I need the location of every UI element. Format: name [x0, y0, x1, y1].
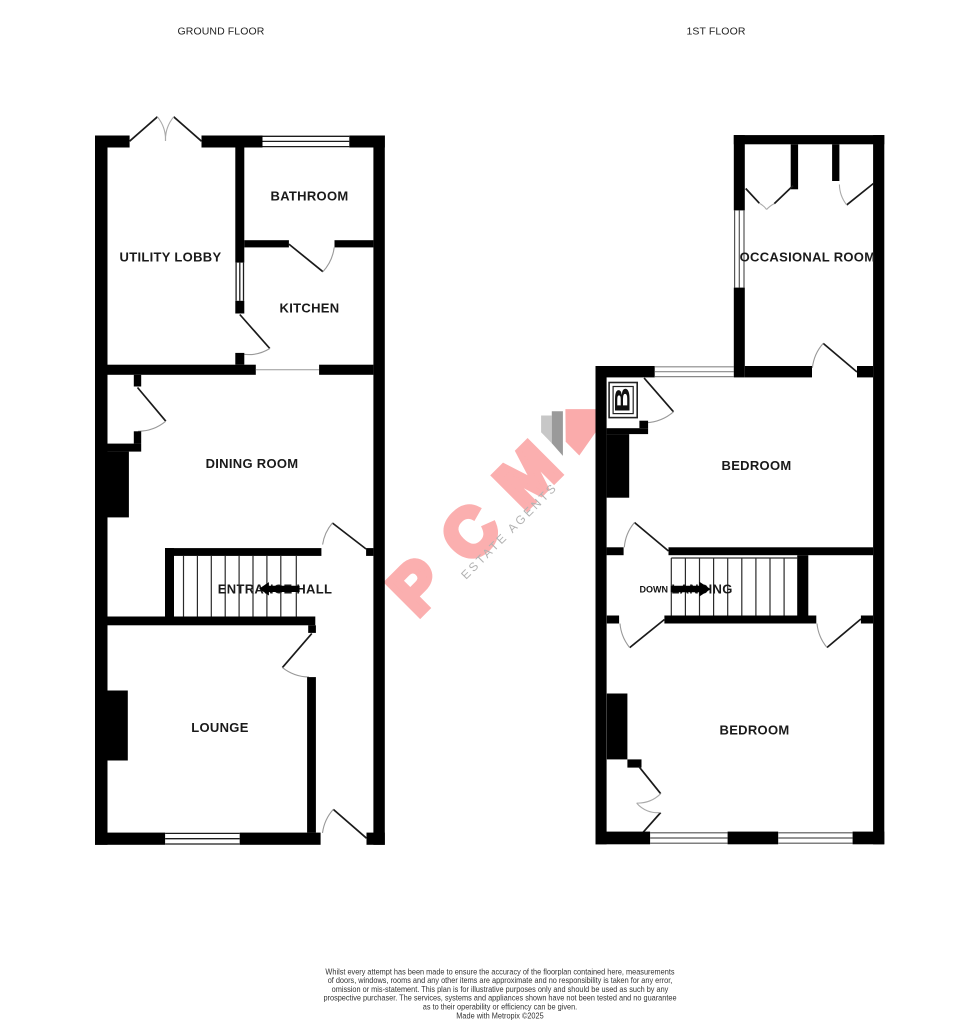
- svg-text:LOUNGE: LOUNGE: [191, 720, 248, 735]
- svg-text:B: B: [611, 387, 635, 413]
- svg-text:KITCHEN: KITCHEN: [280, 301, 340, 316]
- svg-text:DOWN: DOWN: [640, 584, 669, 594]
- svg-text:DINING ROOM: DINING ROOM: [206, 456, 299, 471]
- svg-text:BEDROOM: BEDROOM: [722, 458, 792, 473]
- svg-text:UTILITY LOBBY: UTILITY LOBBY: [120, 250, 222, 265]
- svg-text:BEDROOM: BEDROOM: [720, 723, 790, 738]
- svg-text:GROUND FLOOR: GROUND FLOOR: [178, 26, 265, 38]
- svg-text:Made with Metropix ©2025: Made with Metropix ©2025: [456, 1011, 544, 1020]
- svg-text:1ST FLOOR: 1ST FLOOR: [686, 26, 745, 38]
- svg-text:BATHROOM: BATHROOM: [271, 189, 349, 204]
- svg-text:OCCASIONAL ROOM: OCCASIONAL ROOM: [740, 250, 876, 265]
